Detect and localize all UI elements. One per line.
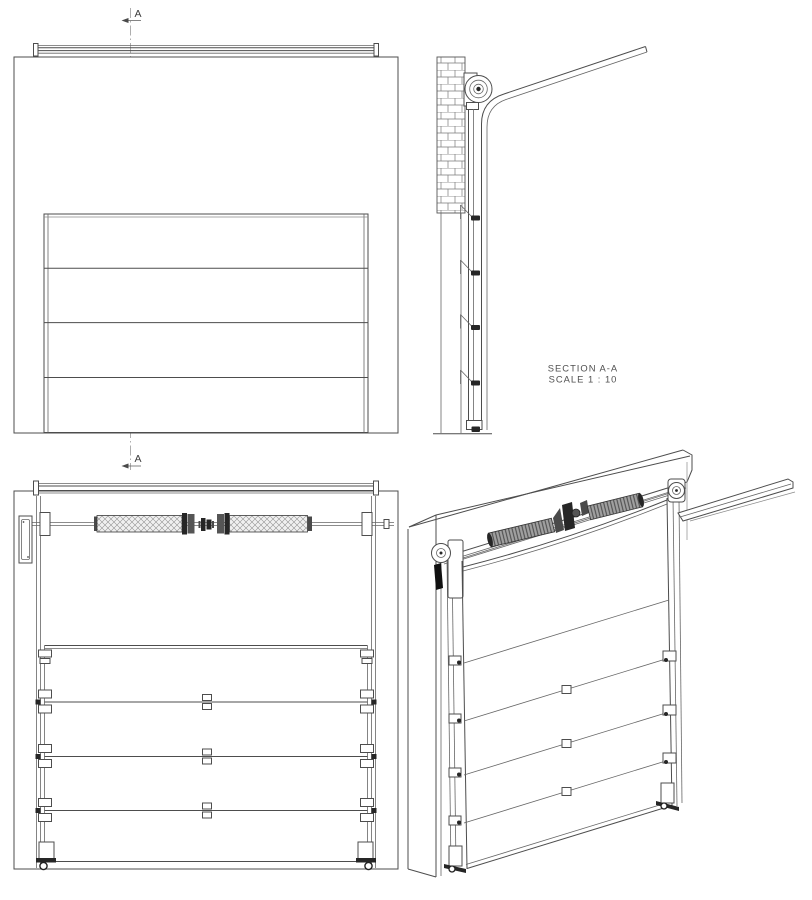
roller-hinge (461, 315, 481, 331)
winding-cone-right (225, 513, 230, 535)
iso-cable-drum-right (668, 479, 685, 502)
rail-end-cap-left (34, 481, 39, 495)
bottom-bracket-section (467, 421, 483, 433)
rear-elevation-view (14, 481, 398, 870)
front-elevation-view: A A (14, 8, 398, 470)
brick-wall-hatch (437, 57, 465, 213)
iso-horizontal-track (678, 479, 795, 521)
panel-joint-line (464, 600, 669, 663)
section-marker-letter: A (134, 8, 141, 20)
iso-beam-end (683, 450, 692, 482)
cable-drum-section (464, 73, 492, 106)
rear-header-rail (34, 481, 379, 495)
iso-bottom-bracket-right (656, 783, 679, 811)
iso-center-hinges (562, 686, 571, 796)
wall-below-lintel (433, 213, 492, 434)
rail-end-cap-right (374, 44, 379, 57)
section-marker-bottom: A (122, 453, 142, 469)
cable-drum-bracket-left (19, 516, 32, 563)
iso-spring-coupler (553, 500, 589, 533)
torsion-spring-left (94, 513, 195, 535)
section-arrow-icon (122, 464, 129, 469)
spring-anchor-right (217, 514, 224, 534)
section-view-label: SECTION A-A SCALE 1 : 10 (548, 363, 618, 385)
isometric-view (408, 450, 795, 877)
front-door-panels (44, 214, 368, 433)
technical-drawing-page: A A (0, 0, 812, 900)
cad-drawing-canvas: A A (0, 0, 812, 900)
track-end-cap (646, 47, 648, 53)
rail-end-cap-right (374, 481, 379, 495)
section-marker-top: A (122, 8, 142, 23)
section-title: SECTION A-A (548, 363, 618, 374)
spring-anchor-left (188, 514, 195, 534)
roller-hinge (461, 370, 481, 386)
rail-end-cap-left (34, 44, 39, 57)
iso-spring-left (486, 518, 555, 547)
iso-door-panels (462, 498, 672, 869)
bearing-plate-left (40, 513, 50, 536)
iso-bottom-bracket-left (444, 846, 466, 873)
drum-slot (434, 563, 443, 590)
section-scale: SCALE 1 : 10 (549, 374, 618, 385)
section-marker-letter: A (134, 453, 141, 465)
winding-cone-left (182, 513, 187, 535)
section-view: SECTION A-A SCALE 1 : 10 (433, 47, 647, 434)
torsion-spring-right (217, 513, 312, 535)
front-top-rail (34, 44, 379, 57)
section-arrow-icon (122, 18, 129, 23)
roller-hinge (461, 260, 481, 276)
top-roller-bracket (467, 103, 479, 110)
